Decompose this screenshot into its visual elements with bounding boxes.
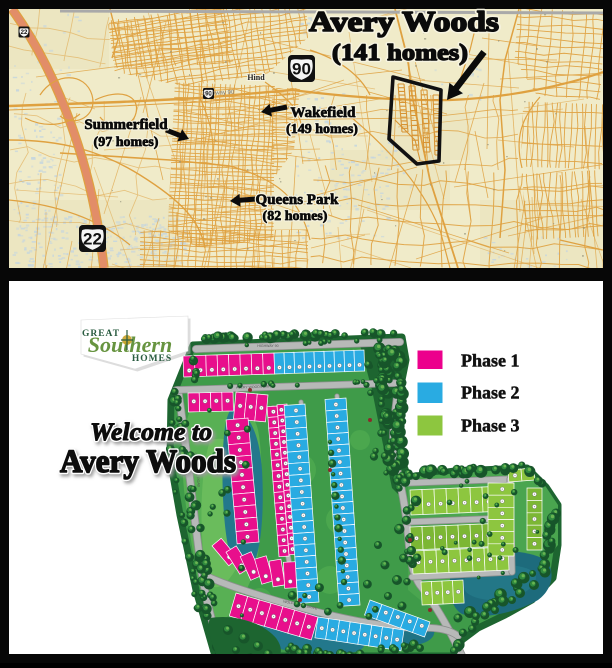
svg-text:Phase 3: Phase 3 bbox=[461, 416, 520, 436]
svg-text:22: 22 bbox=[83, 230, 102, 249]
svg-text:Phase 2: Phase 2 bbox=[461, 383, 520, 403]
svg-text:(149 homes): (149 homes) bbox=[286, 122, 358, 137]
svg-text:Queens Park: Queens Park bbox=[256, 192, 340, 208]
svg-text:Hind: Hind bbox=[247, 73, 265, 82]
svg-text:HIGHWAY 90: HIGHWAY 90 bbox=[257, 344, 278, 348]
svg-text:Avery Woods: Avery Woods bbox=[309, 7, 499, 38]
svg-text:Phase 1: Phase 1 bbox=[461, 351, 520, 371]
svg-text:Highway 90: Highway 90 bbox=[203, 90, 235, 97]
svg-text:Welcome to: Welcome to bbox=[90, 419, 212, 446]
svg-text:Avery Woods: Avery Woods bbox=[60, 444, 236, 480]
svg-text:Summerfield: Summerfield bbox=[84, 117, 168, 133]
svg-text:22: 22 bbox=[21, 30, 28, 36]
svg-text:HOMES: HOMES bbox=[132, 354, 172, 364]
svg-text:(97 homes): (97 homes) bbox=[94, 135, 159, 150]
svg-text:(82 homes): (82 homes) bbox=[263, 209, 328, 224]
svg-text:Wakefield: Wakefield bbox=[290, 105, 356, 121]
svg-text:90: 90 bbox=[292, 60, 311, 79]
svg-text:(141 homes): (141 homes) bbox=[332, 40, 468, 65]
